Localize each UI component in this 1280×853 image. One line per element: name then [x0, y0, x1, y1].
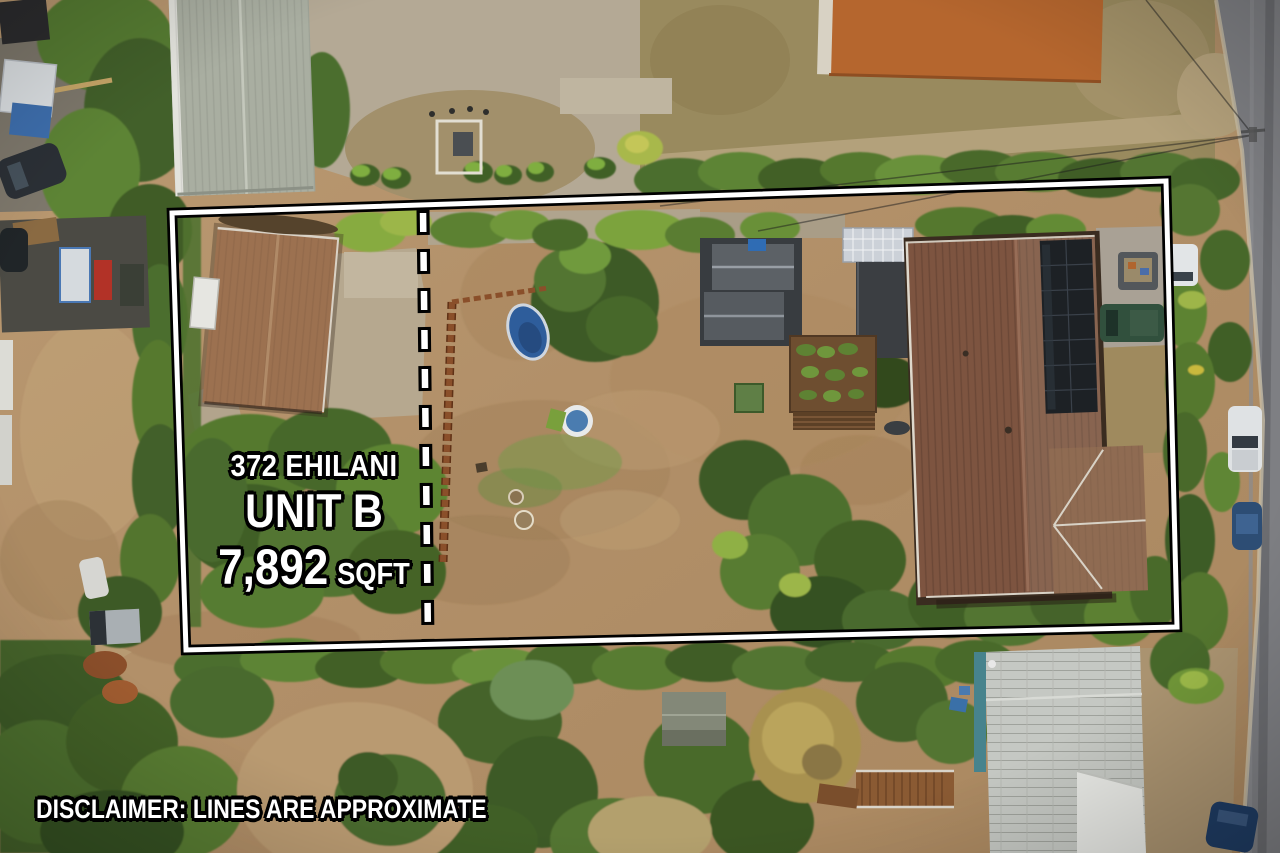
property-label: 372 EHILANI UNIT B 7,892SQFT [180, 450, 448, 592]
address-line: 372 EHILANI [196, 450, 432, 481]
unit-line: UNIT B [196, 487, 432, 534]
aerial-photo: 372 EHILANI UNIT B 7,892SQFT DISCLAIMER:… [0, 0, 1280, 853]
disclaimer-label: DISCLAIMER: LINES ARE APPROXIMATE [36, 796, 487, 823]
aerial-photo-canvas [0, 0, 1280, 853]
area-value: 7,892 [218, 539, 328, 595]
vignette [0, 0, 1280, 853]
area-unit: SQFT [337, 556, 410, 591]
area-line: 7,892SQFT [196, 542, 432, 592]
